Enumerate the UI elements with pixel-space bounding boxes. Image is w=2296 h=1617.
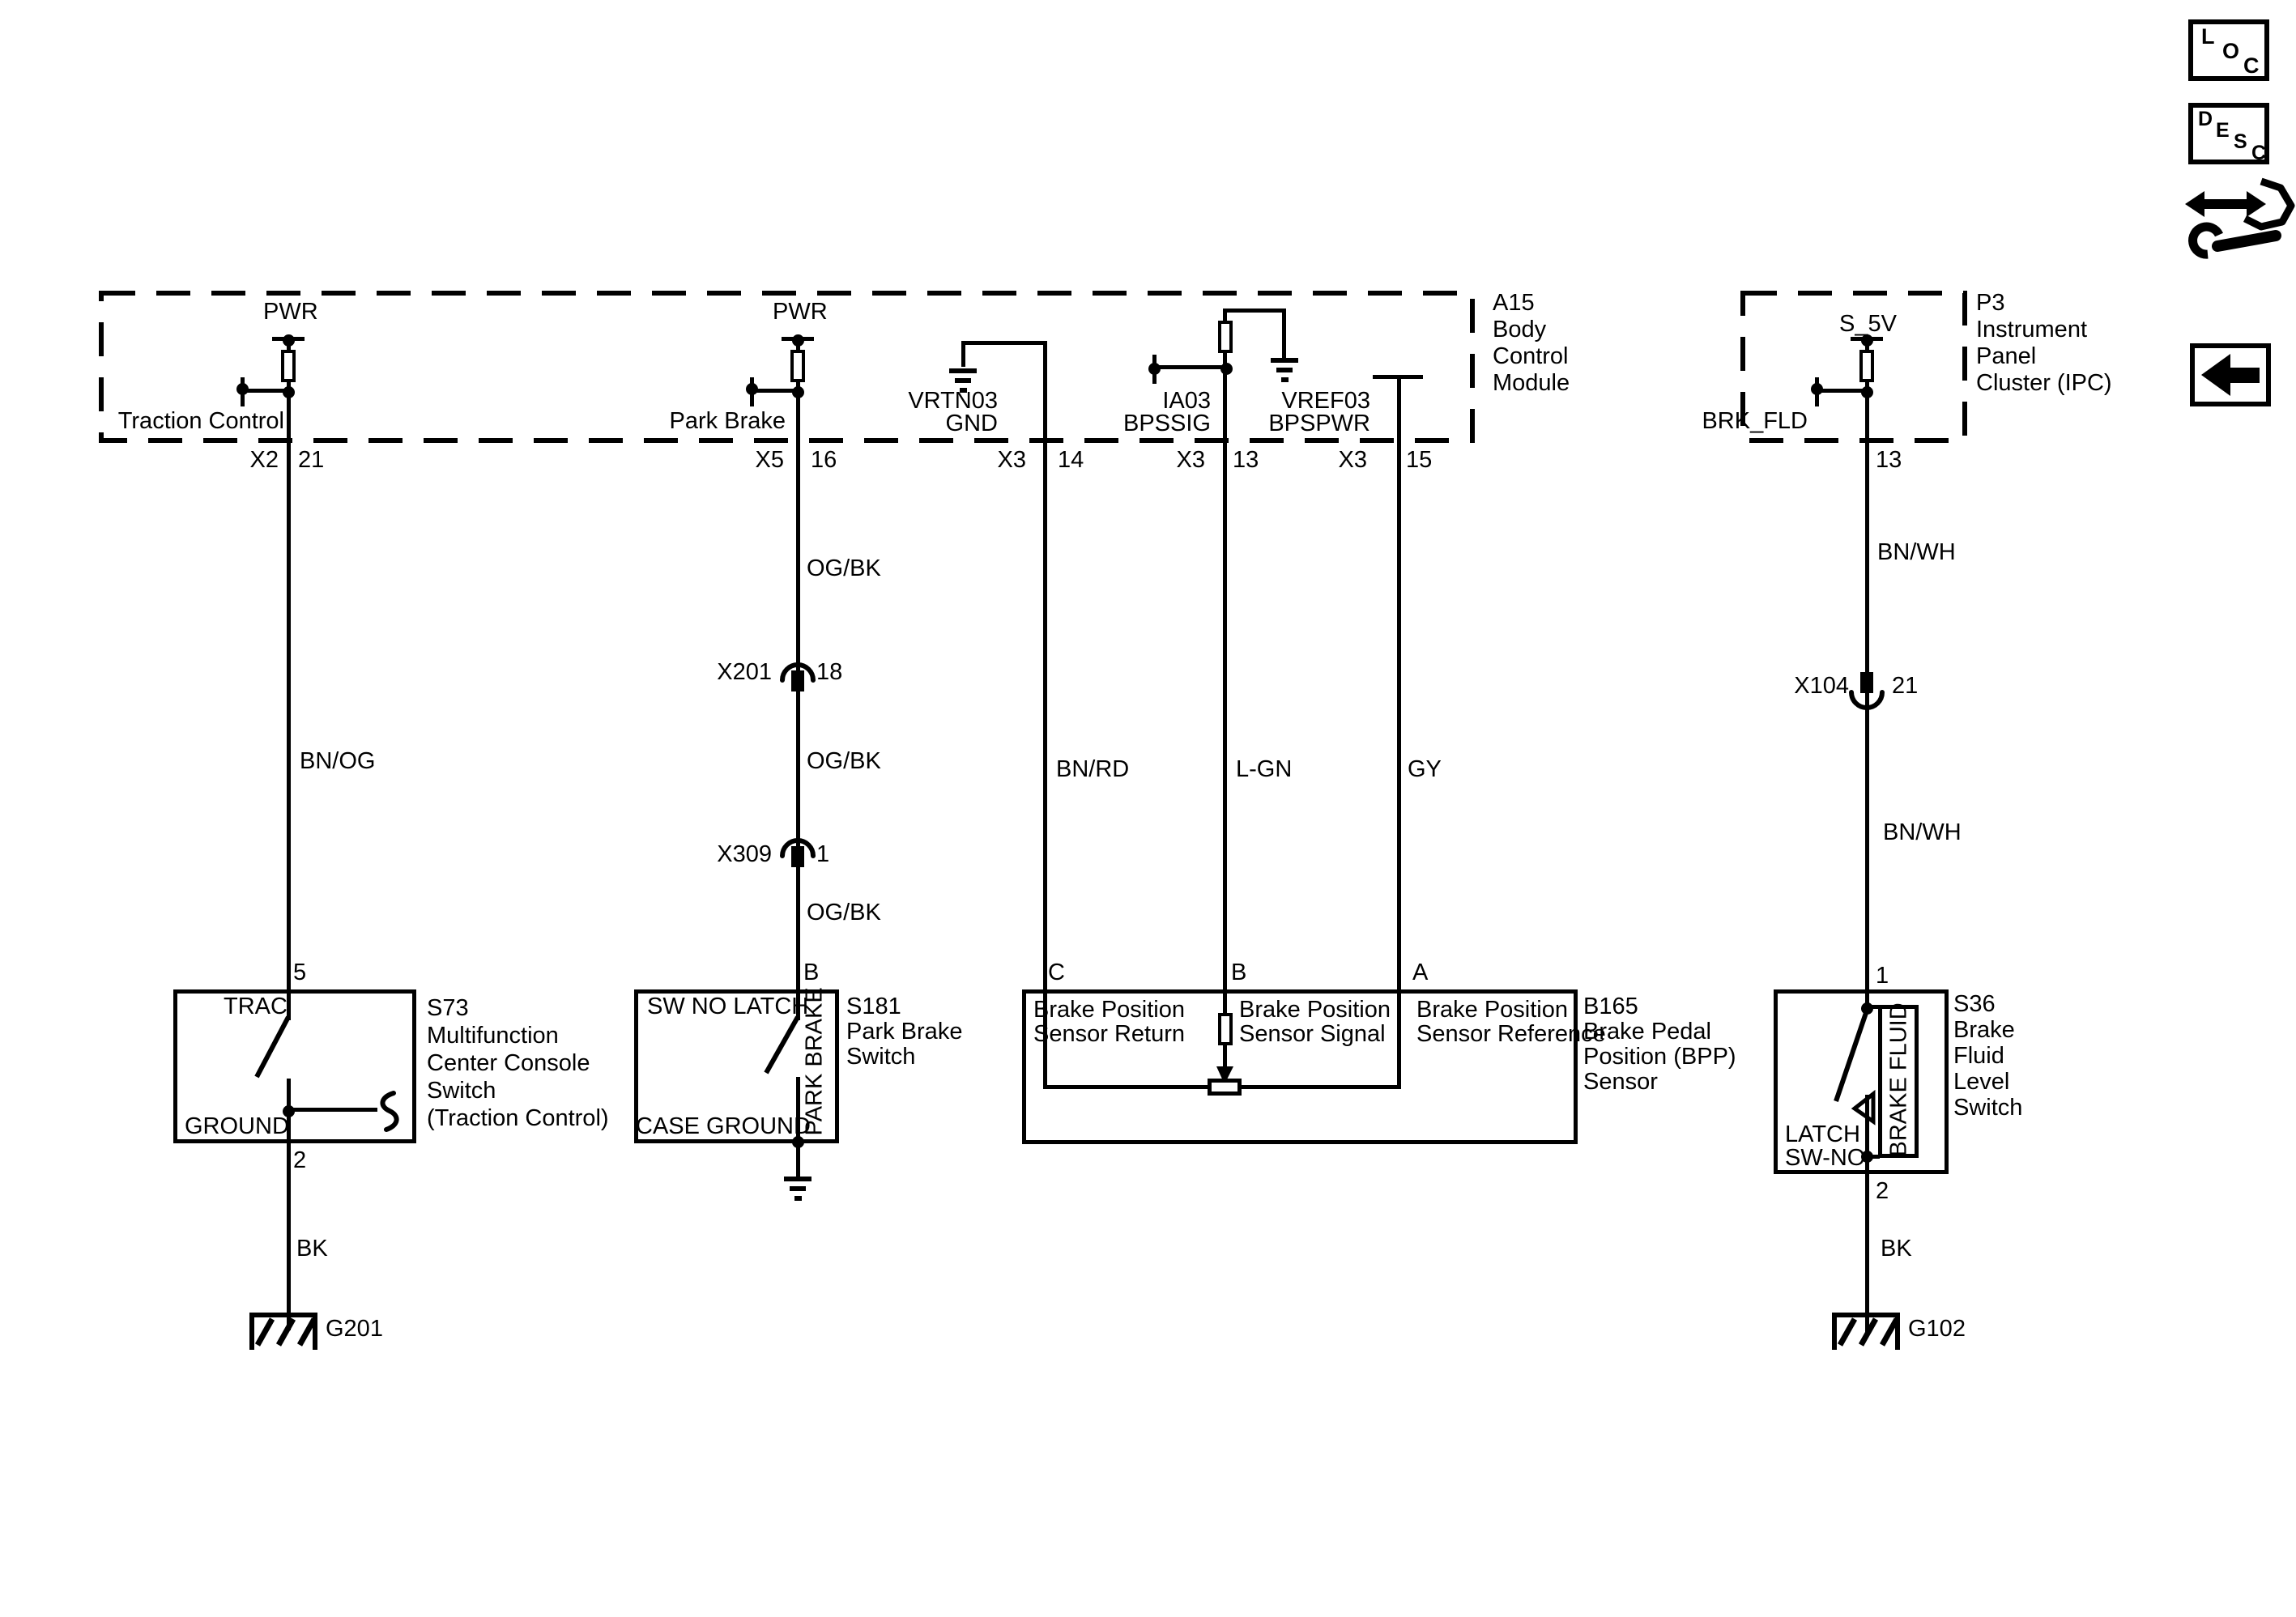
desc-letter: D (2198, 108, 2213, 131)
bcm-id-line: A15 (1493, 290, 1570, 317)
s73-id-label: S73 Multifunction Center Console Switch … (427, 994, 609, 1132)
traction-wire-bnog (287, 381, 291, 1020)
brkfld-label: BRK_FLD (1702, 409, 1808, 433)
s73-id-line: S73 (427, 994, 609, 1022)
ia03-ground-icon (1271, 358, 1298, 363)
x201-splice-pin: 18 (816, 660, 842, 684)
s36-pin-top: 1 (1876, 964, 1889, 988)
ipc-id-line: Cluster (IPC) (1976, 370, 2112, 397)
bpp-reference-line: Sensor Reference (1416, 1022, 1606, 1046)
vrtn-wire-bnrd (1043, 341, 1047, 1087)
s5v-element (1859, 350, 1874, 382)
x309-splice-label: X309 (717, 842, 772, 866)
parkbrake-conn-label: X5 (756, 448, 784, 472)
s181-pin-top: B (803, 960, 819, 985)
s181-id-line: Park Brake (846, 1019, 962, 1045)
desc-letter: S (2234, 130, 2247, 154)
g102-ground-icon (1832, 1313, 1900, 1317)
vrtn-conn-pin: 14 (1058, 448, 1084, 472)
s181-contact-bottom-label: CASE GROUND (636, 1114, 811, 1138)
loc-letter: O (2222, 39, 2239, 64)
junction-dot (792, 334, 804, 347)
ia03-conn-label: X3 (1177, 448, 1205, 472)
service-wrench-arrow-icon[interactable] (2183, 172, 2296, 261)
ia03-pullup-ground-drop (1282, 309, 1286, 358)
ia03-ground-bar3 (1281, 377, 1289, 382)
ia03-wire-lgn (1223, 367, 1227, 1015)
s73-contact-top-label: TRAC (224, 994, 288, 1019)
s36-id-label: S36 Brake Fluid Level Switch (1953, 991, 2022, 1121)
desc-letter: C (2251, 142, 2266, 165)
ia03-ground-bar2 (1276, 368, 1293, 372)
ia03-stub (1152, 365, 1227, 369)
bpp-id-label: B165 Brake Pedal Position (BPP) Sensor (1583, 994, 1736, 1095)
g201-label: G201 (326, 1317, 383, 1341)
traction-control-label: Traction Control (118, 409, 284, 433)
s36-latch-label: LATCH (1785, 1122, 1860, 1147)
s36-id-line: Level (1953, 1069, 2022, 1095)
s36-pin-bottom: 2 (1876, 1179, 1889, 1203)
s73-pin-bottom: 2 (293, 1148, 306, 1172)
traction-pwr-element (281, 350, 296, 382)
bcm-id-line: Body (1493, 317, 1570, 343)
wire-color-label: BN/RD (1056, 757, 1129, 781)
junction-dot (283, 386, 295, 398)
s36-id-line: S36 (1953, 991, 2022, 1017)
s36-swno-label: SW-NO (1785, 1146, 1865, 1170)
vref-conn-label: X3 (1339, 448, 1367, 472)
g201-left (249, 1313, 254, 1350)
x104-connector-pin (1860, 672, 1873, 693)
bpp-reference-label: Brake Position Sensor Reference (1416, 998, 1606, 1046)
wire-color-label: L-GN (1236, 757, 1292, 781)
junction-dot (1220, 363, 1233, 375)
ia03-net-label: IA03 (1162, 389, 1211, 413)
loc-button[interactable]: L O C (2188, 19, 2269, 81)
bpp-return-label: Brake Position Sensor Return (1033, 998, 1185, 1046)
ia03-pullup-resistor (1218, 321, 1233, 353)
wire-color-label: OG/BK (807, 556, 881, 581)
bcm-id-line: Control (1493, 343, 1570, 370)
g102-label: G102 (1908, 1317, 1966, 1341)
vref-wire-gy (1397, 375, 1401, 1087)
bpp-id-line: Brake Pedal (1583, 1019, 1736, 1045)
g102-right (1895, 1313, 1900, 1350)
s181-id-label: S181 Park Brake Switch (846, 994, 962, 1070)
junction-dot (746, 383, 758, 395)
wire-color-label: BK (1881, 1236, 1912, 1261)
wire-color-label: OG/BK (807, 749, 881, 773)
x201-splice-label: X201 (717, 660, 772, 684)
s5v-label: S_5V (1839, 312, 1897, 336)
bpp-id-line: Sensor (1583, 1070, 1736, 1095)
desc-button[interactable]: D E S C (2188, 103, 2269, 164)
x104-splice-label: X104 (1794, 674, 1849, 698)
loc-letter: C (2243, 53, 2260, 79)
wire-color-label: OG/BK (807, 900, 881, 925)
bpp-id-line: Position (BPP) (1583, 1045, 1736, 1070)
ia03-func-label: BPSSIG (1123, 411, 1211, 436)
vrtn-func-label: GND (946, 411, 998, 436)
s36-id-line: Brake (1953, 1017, 2022, 1043)
s36-id-line: Switch (1953, 1095, 2022, 1121)
bpp-signal-label: Brake Position Sensor Signal (1239, 998, 1391, 1046)
wire-color-label: BK (296, 1236, 328, 1261)
s181-contact-top-label: SW NO LATCH (647, 994, 808, 1019)
ipc-id-label: P3 Instrument Panel Cluster (IPC) (1976, 290, 2112, 397)
vrtn-conn-label: X3 (998, 448, 1026, 472)
s181-vertical-label: PARK BRAKE (802, 998, 829, 1136)
s36-id-line: Fluid (1953, 1043, 2022, 1069)
x201-connector-pin (791, 670, 804, 691)
vrtn-net-label: VRTN03 (908, 389, 998, 413)
g201-right (313, 1313, 317, 1350)
bcm-id-line: Module (1493, 370, 1570, 397)
back-arrow-icon (2195, 348, 2264, 402)
junction-dot (283, 334, 295, 347)
s73-id-line: (Traction Control) (427, 1104, 609, 1132)
s181-case-ground-icon (784, 1177, 811, 1181)
park-brake-label: Park Brake (670, 409, 786, 433)
loc-letter: L (2201, 24, 2215, 49)
s181-id-line: S181 (846, 994, 962, 1019)
parkbrake-conn-pin: 16 (811, 448, 837, 472)
diagram-shapes-layer (0, 0, 2296, 1617)
junction-dot (792, 386, 804, 398)
vrtn-top-branch (961, 341, 1047, 345)
brkfld-wire-bnwh (1865, 381, 1869, 1014)
g102-left (1832, 1313, 1837, 1350)
wire-color-label: BN/WH (1877, 540, 1956, 564)
vrtn-ground-icon (949, 368, 977, 373)
wiring-diagram: PWR PWR S_5V Traction Control Park Brake… (0, 0, 2296, 1617)
traction-conn-label: X2 (250, 448, 279, 472)
desc-letter: E (2216, 119, 2230, 143)
ia03-pullup-branch (1223, 309, 1286, 313)
s73-contact-bottom-label: GROUND (185, 1114, 289, 1138)
s181-ground-bar3 (794, 1196, 802, 1201)
s181-ground-bar2 (790, 1186, 806, 1191)
vref-conn-pin: 15 (1406, 448, 1432, 472)
back-button[interactable] (2190, 343, 2271, 406)
junction-dot (1861, 386, 1873, 398)
junction-dot (236, 383, 249, 395)
bpp-signal-line: Sensor Signal (1239, 1022, 1391, 1046)
bpp-reference-line: Brake Position (1416, 998, 1606, 1022)
ipc-id-line: Instrument (1976, 317, 2112, 343)
g201-hatches (258, 1319, 314, 1345)
x309-connector-pin (791, 846, 804, 867)
s36-vertical-label: BRAKE FLUID (1886, 1011, 1913, 1157)
junction-dot (1148, 363, 1161, 375)
ipc-id-line: Panel (1976, 343, 2112, 370)
bpp-pin-b: B (1231, 960, 1246, 985)
bpp-signal-line: Brake Position (1239, 998, 1391, 1022)
bpp-id-line: B165 (1583, 994, 1736, 1019)
vrtn-ground-bar2 (955, 378, 971, 383)
junction-dot (1811, 383, 1823, 395)
parkbrake-wire-ogbk (796, 381, 800, 1020)
parkbrake-pwr-label: PWR (773, 300, 828, 324)
junction-dot (1861, 1002, 1873, 1015)
bpp-return-line: Sensor Return (1033, 1022, 1185, 1046)
wire-color-label: BN/OG (300, 749, 375, 773)
bcm-id-label: A15 Body Control Module (1493, 290, 1570, 397)
bpp-return-line: Brake Position (1033, 998, 1185, 1022)
s73-id-line: Multifunction (427, 1022, 609, 1049)
s73-pin-top: 5 (293, 960, 306, 985)
x309-splice-pin: 1 (816, 842, 829, 866)
traction-pwr-label: PWR (263, 300, 318, 324)
s73-id-line: Center Console (427, 1049, 609, 1077)
bpp-pin-a: A (1412, 960, 1428, 985)
bpp-pin-c: C (1048, 960, 1065, 985)
parkbrake-pwr-element (790, 350, 805, 382)
ia03-conn-pin: 13 (1233, 448, 1259, 472)
vrtn-ground-drop (961, 341, 965, 367)
vref-net-label: VREF03 (1281, 389, 1370, 413)
g201-ground-icon (249, 1313, 317, 1317)
ipc-conn-pin: 13 (1876, 448, 1902, 472)
x104-splice-pin: 21 (1892, 674, 1918, 698)
vref-func-label: BPSPWR (1268, 411, 1370, 436)
s73-id-line: Switch (427, 1077, 609, 1104)
wire-color-label: GY (1408, 757, 1442, 781)
wire-color-label: BN/WH (1883, 820, 1962, 845)
s181-id-line: Switch (846, 1045, 962, 1070)
ipc-id-line: P3 (1976, 290, 2112, 317)
traction-conn-pin: 21 (298, 448, 324, 472)
